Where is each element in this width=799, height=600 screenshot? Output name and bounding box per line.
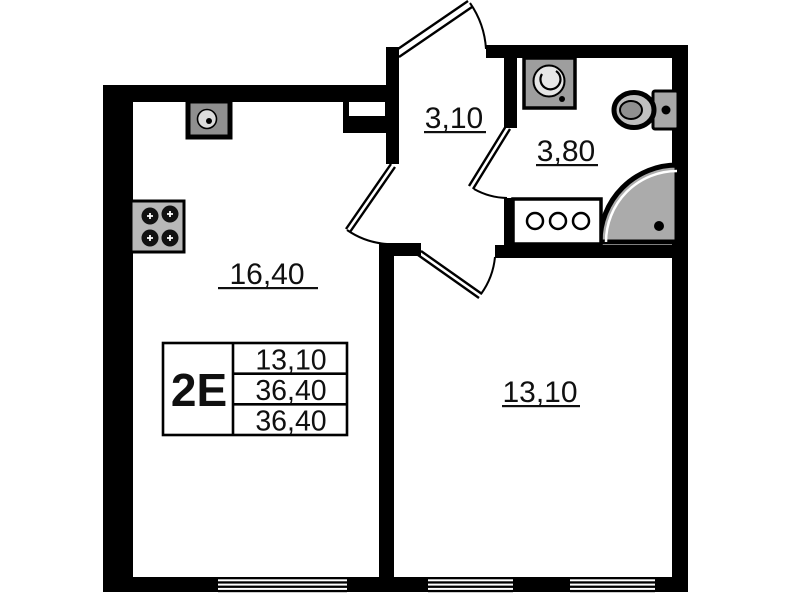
wall-bathroom-top: [486, 45, 688, 58]
area-underline-bathroom: [536, 164, 598, 166]
wall-left-outer: [103, 85, 133, 592]
window-room-left: [428, 577, 513, 593]
wall-bathroom-bottom: [495, 245, 678, 258]
wall-hall-left-upper: [386, 47, 399, 164]
unit-stat-row-3: 36,40: [255, 406, 326, 438]
unit-type-label: 2E: [171, 364, 227, 416]
area-label-kitchen: 16,40: [229, 258, 304, 291]
kitchen-sink-icon: [188, 101, 230, 137]
unit-info-table: 2E 13,10 36,40 36,40: [163, 343, 347, 438]
wall-interior-vertical: [379, 243, 394, 577]
windows: [218, 577, 655, 593]
floor-plan-drawing: 16,40 3,10 3,80 13,10 2E 13,10 36,40 36,…: [0, 0, 799, 600]
wall-bath-hall-upper: [504, 58, 517, 128]
entry-door: [395, 1, 486, 57]
washing-machine-icon: [524, 58, 575, 108]
kitchen-door: [346, 164, 395, 244]
wall-hall-bottom-stub: [393, 243, 421, 256]
toilet-icon: [614, 91, 678, 129]
window-room-right: [570, 577, 655, 593]
room-door: [418, 251, 495, 298]
unit-stat-row-2: 36,40: [255, 375, 326, 407]
unit-stat-row-1: 13,10: [255, 345, 326, 377]
area-label-hallway: 3,10: [425, 102, 483, 135]
vanity-icon: [513, 199, 601, 244]
area-label-bathroom: 3,80: [537, 135, 595, 168]
area-label-room: 13,10: [502, 376, 577, 409]
doors: [346, 1, 510, 298]
bathroom-door: [469, 126, 510, 198]
area-underline-kitchen: [218, 287, 318, 289]
corner-shower-icon: [600, 165, 677, 242]
vent-duct: [349, 102, 385, 116]
stove-icon: [131, 201, 184, 252]
area-underline-room: [502, 405, 580, 407]
area-underline-hallway: [424, 131, 486, 133]
floor-plan: 16,40 3,10 3,80 13,10 2E 13,10 36,40 36,…: [0, 0, 799, 600]
window-kitchen: [218, 577, 347, 593]
